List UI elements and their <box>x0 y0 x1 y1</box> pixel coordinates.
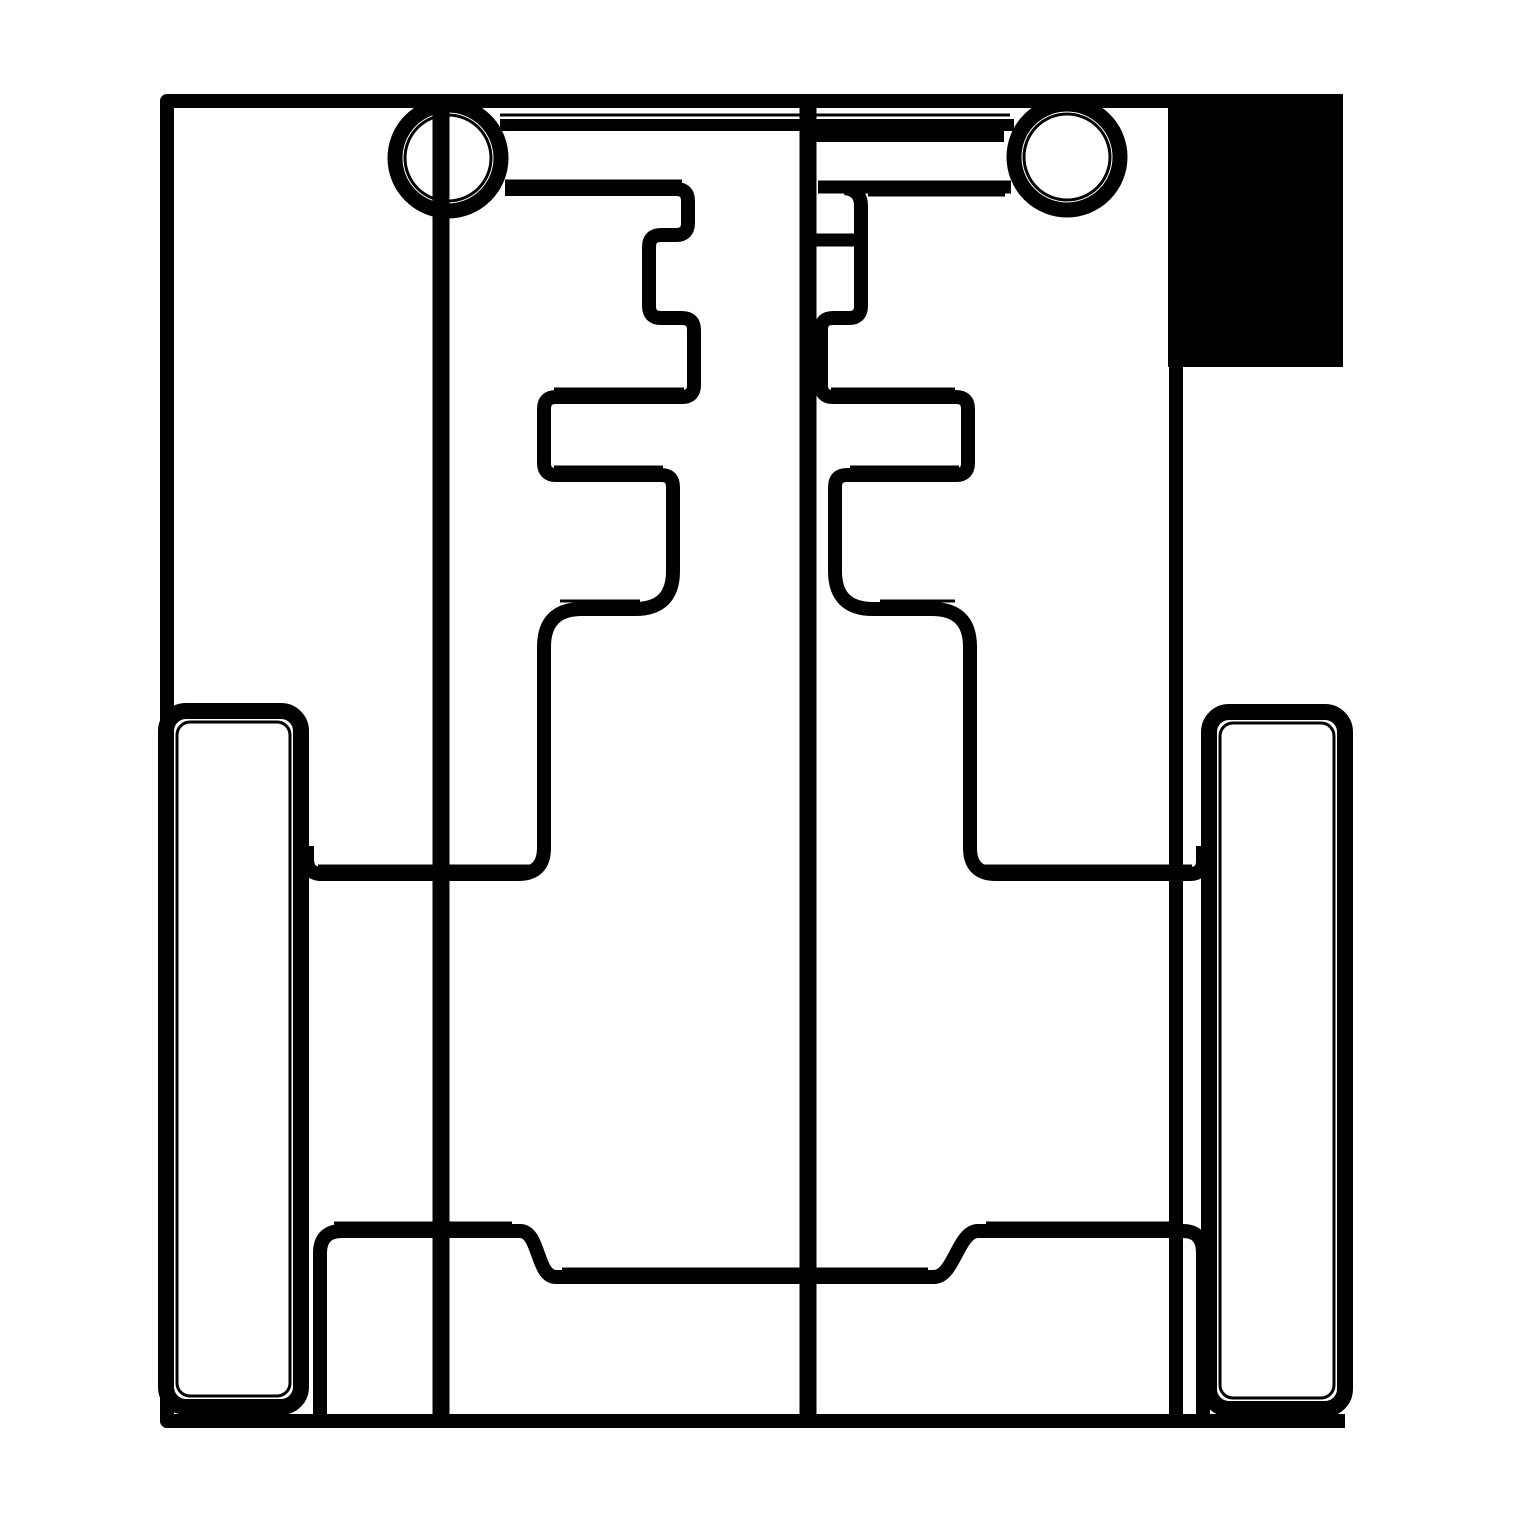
left-side-panel-seam <box>177 722 290 1396</box>
corner-fill-block <box>1168 95 1343 367</box>
pattern-drawing-svg <box>0 0 1519 1519</box>
right-side-panel-seam <box>1220 723 1334 1398</box>
left-side-panel <box>166 711 301 1407</box>
right-side-panel <box>1209 712 1345 1409</box>
bottom-step-line <box>320 1231 1203 1418</box>
left-zipper-profile <box>307 189 694 874</box>
right-grommet-inner-ring <box>1024 114 1110 200</box>
pattern-sheet <box>0 0 1519 1519</box>
right-grommet-ring <box>1014 104 1120 210</box>
right-zipper-profile <box>821 188 1203 874</box>
